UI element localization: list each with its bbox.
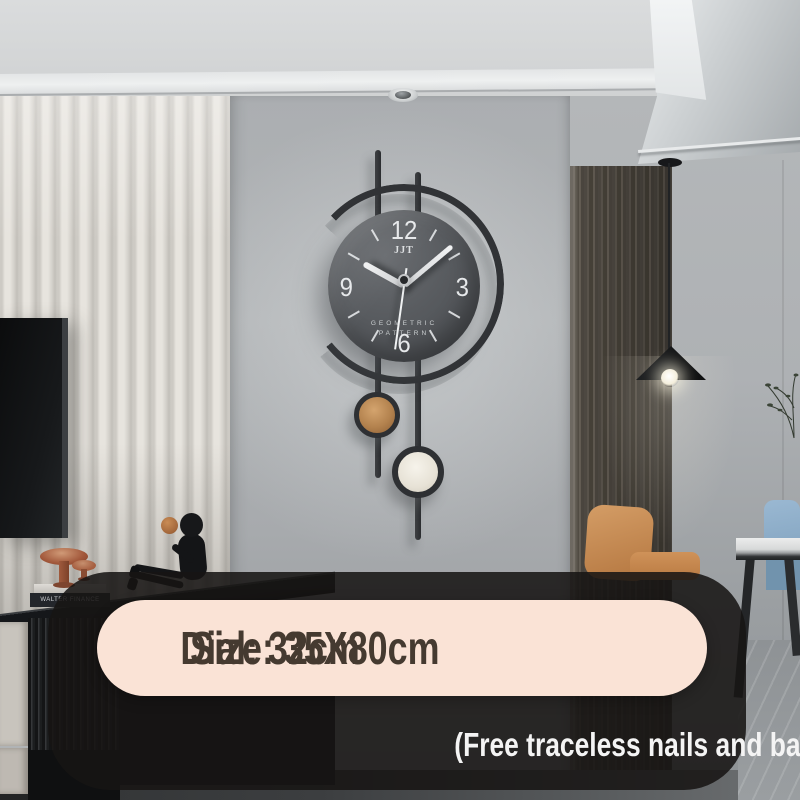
clock-second-hand-tail <box>403 268 407 286</box>
clock-dial-label: GEOMETRIC <box>328 320 480 327</box>
figurine-head <box>180 513 203 537</box>
clock-brand-logo: JJT <box>328 245 480 256</box>
marble-floor <box>738 640 800 800</box>
clock-tick <box>448 310 460 318</box>
tv-screen <box>0 318 68 538</box>
product-photo-wall-clock: WALTER FINANCE 12 3 6 9 JJT GEOMETRIC PA… <box>0 0 800 800</box>
clock-second-hand <box>394 286 405 350</box>
tv-console-door <box>0 622 28 746</box>
overall-size-label: Size: 35X80cm <box>190 621 439 675</box>
spec-banner-pill: Dial: 32cm Size: 35X80cm <box>97 600 707 696</box>
clock-tick <box>371 229 379 241</box>
clock-tick <box>429 229 437 241</box>
clock-dial-label: PATTERN <box>328 330 480 337</box>
pendulum-cream-disc <box>392 446 444 498</box>
pendant-lamp-bulb <box>661 369 679 387</box>
dining-table-top <box>736 538 800 560</box>
clock-center-cap <box>398 274 410 286</box>
pendulum-copper-disc <box>354 392 400 438</box>
clock-tick <box>371 330 379 342</box>
clock-tick <box>448 252 460 260</box>
spotlight-lens <box>395 91 411 99</box>
recessed-spotlight <box>388 88 418 102</box>
clock-tick <box>348 310 360 318</box>
clock-dial: 12 3 6 9 JJT GEOMETRIC PATTERN <box>328 210 480 362</box>
clock-tick <box>429 330 437 342</box>
clock-numeral-6: 6 <box>334 328 474 359</box>
freebie-note-text: (Free traceless nails and batteries) <box>454 726 800 764</box>
clock-hour-hand <box>362 261 405 289</box>
figurine-bubble-ball <box>161 517 178 534</box>
clock-numeral-3: 3 <box>455 272 468 303</box>
pendant-lamp-mount <box>658 158 682 167</box>
clock-numeral-9: 9 <box>340 272 353 303</box>
clock-numeral-12: 12 <box>334 215 474 246</box>
clock-tick <box>348 252 360 260</box>
plant-branches <box>754 368 800 442</box>
tv-console-door <box>0 748 28 794</box>
bowl-stem <box>59 561 69 584</box>
pendant-lamp-cord <box>668 163 670 349</box>
clock-minute-hand <box>402 244 453 288</box>
